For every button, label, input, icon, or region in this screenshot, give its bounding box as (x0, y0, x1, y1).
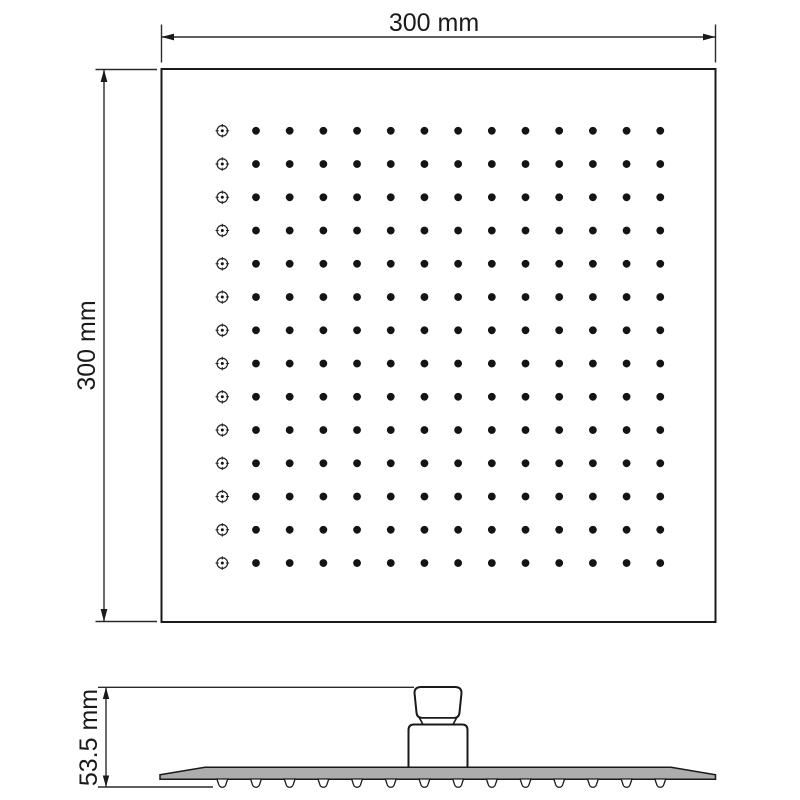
nozzle-dot (421, 493, 429, 501)
nozzle-dot (286, 360, 294, 368)
nozzle-dot (522, 127, 530, 135)
nozzle-dot (387, 360, 395, 368)
nozzle-dot (421, 127, 429, 135)
nozzle-dot (421, 260, 429, 268)
nozzle-dot (656, 360, 664, 368)
nozzle-dot (522, 360, 530, 368)
nozzle-dot (421, 526, 429, 534)
nozzle-dot (589, 160, 597, 168)
nozzle-dot (522, 459, 530, 467)
nozzle-dot (387, 326, 395, 334)
nozzle-dot (488, 426, 496, 434)
nozzle-dot (488, 260, 496, 268)
nozzle-dot (353, 293, 361, 301)
width-dimension-label: 300 mm (389, 9, 479, 37)
nozzle-dot (623, 559, 631, 567)
nozzle-dot (623, 193, 631, 201)
nozzle-dot (387, 426, 395, 434)
nozzle-dot (555, 127, 563, 135)
nozzle-dot (319, 193, 327, 201)
nozzle-dot (522, 426, 530, 434)
nozzle-dot (252, 360, 260, 368)
nozzle-dot (656, 459, 664, 467)
nozzle-dot (656, 260, 664, 268)
nozzle-dot (353, 326, 361, 334)
nozzle-dot (421, 160, 429, 168)
nozzle-dot (421, 227, 429, 235)
nozzle-dot (589, 459, 597, 467)
nozzle-tip (587, 779, 598, 787)
nozzle-tips-row (217, 779, 666, 787)
nozzle-dot (421, 559, 429, 567)
nozzle-dot (353, 160, 361, 168)
nozzle-dot (454, 526, 462, 534)
nozzle-dot (656, 559, 664, 567)
nozzle-dot (286, 559, 294, 567)
nozzle-dot (555, 293, 563, 301)
nozzle-dot (286, 493, 294, 501)
nozzle-dot (555, 493, 563, 501)
nozzle-dot (555, 260, 563, 268)
nozzle-dot (252, 326, 260, 334)
nozzle-dot (421, 193, 429, 201)
nozzle-dot (353, 393, 361, 401)
nozzle-dot (522, 559, 530, 567)
nozzle-dot (488, 493, 496, 501)
nozzle-dot (319, 227, 327, 235)
nozzle-dot (623, 160, 631, 168)
nozzle-dot (522, 393, 530, 401)
shower-plate-profile (160, 767, 716, 779)
nozzle-tip (385, 779, 396, 787)
nozzle-dot (454, 360, 462, 368)
nozzle-dot (555, 559, 563, 567)
nozzle-tip (621, 779, 632, 787)
shower-head-dimension-drawing: 300 mm 300 mm (0, 0, 800, 800)
nozzle-dot (555, 426, 563, 434)
inlet-fitting (415, 687, 462, 718)
height-dimension (96, 70, 158, 622)
nozzle-dot (454, 426, 462, 434)
connector-base (409, 725, 468, 769)
nozzle-dot (488, 559, 496, 567)
nozzle-dot (656, 526, 664, 534)
nozzle-dot (488, 326, 496, 334)
nozzle-dot (387, 493, 395, 501)
nozzle-dot (353, 559, 361, 567)
nozzle-tip (554, 779, 565, 787)
nozzle-dot (454, 160, 462, 168)
nozzle-dot (589, 260, 597, 268)
nozzle-dot (286, 260, 294, 268)
nozzle-dot (623, 260, 631, 268)
nozzle-dot (522, 160, 530, 168)
nozzle-dot (387, 260, 395, 268)
arrowhead-down-icon (103, 776, 109, 788)
nozzle-dot (319, 493, 327, 501)
nozzle-dot (454, 393, 462, 401)
nozzle-tip (419, 779, 430, 787)
nozzle-dot (522, 493, 530, 501)
nozzle-dot (656, 426, 664, 434)
nozzle-dot (319, 127, 327, 135)
nozzle-dot (488, 127, 496, 135)
nozzle-dot (454, 326, 462, 334)
nozzle-dot (623, 293, 631, 301)
nozzle-dot (488, 393, 496, 401)
nozzle-dot (589, 559, 597, 567)
nozzle-dot (421, 326, 429, 334)
nozzle-dot (488, 526, 496, 534)
nozzle-dot (623, 526, 631, 534)
nozzle-dot (252, 127, 260, 135)
nozzle-dot (387, 293, 395, 301)
nozzle-dot (589, 393, 597, 401)
front-view (162, 69, 716, 622)
nozzle-dot (319, 393, 327, 401)
side-height-dimension-label: 53.5 mm (75, 689, 103, 786)
nozzle-dot (522, 326, 530, 334)
nozzle-dot (656, 393, 664, 401)
nozzle-dot (353, 227, 361, 235)
nozzle-dot (623, 326, 631, 334)
nozzle-dot (286, 393, 294, 401)
nozzle-dot (421, 360, 429, 368)
nozzle-dot (387, 459, 395, 467)
nozzle-dot (252, 559, 260, 567)
nozzle-dot (623, 227, 631, 235)
nozzle-dot (656, 193, 664, 201)
nozzle-dot (387, 193, 395, 201)
nozzle-tip (486, 779, 497, 787)
nozzle-dot (421, 393, 429, 401)
nozzle-dot (319, 360, 327, 368)
nozzle-tip (453, 779, 464, 787)
nozzle-tip (352, 779, 363, 787)
nozzle-dot (488, 293, 496, 301)
nozzle-dot (319, 326, 327, 334)
nozzle-dot (387, 526, 395, 534)
nozzle-dot (387, 127, 395, 135)
nozzle-dot (353, 193, 361, 201)
nozzle-dot (286, 459, 294, 467)
nozzle-dot (286, 127, 294, 135)
nozzle-dot (589, 360, 597, 368)
nozzle-dot (353, 360, 361, 368)
arrowhead-left-icon (162, 34, 175, 41)
nozzle-dot (286, 193, 294, 201)
nozzle-dot (252, 293, 260, 301)
nozzle-dot (252, 426, 260, 434)
arrowhead-right-icon (703, 34, 716, 41)
nozzle-dot (555, 360, 563, 368)
nozzle-dot (252, 193, 260, 201)
nozzle-dot (286, 160, 294, 168)
nozzle-dot (522, 227, 530, 235)
nozzle-dot (555, 160, 563, 168)
height-dimension-label: 300 mm (73, 300, 101, 390)
arrowhead-up-icon (101, 70, 108, 83)
nozzle-dot (522, 193, 530, 201)
nozzle-dot (623, 459, 631, 467)
nozzle-dot (353, 526, 361, 534)
nozzle-dot (252, 493, 260, 501)
nozzle-dot (353, 426, 361, 434)
nozzle-dot (319, 160, 327, 168)
nozzle-dot (589, 493, 597, 501)
nozzle-dot (555, 326, 563, 334)
nozzle-dot (623, 360, 631, 368)
nozzle-dot (387, 160, 395, 168)
nozzle-dot (353, 127, 361, 135)
nozzle-dot (656, 493, 664, 501)
nozzle-dot (488, 459, 496, 467)
nozzle-dot (454, 227, 462, 235)
nozzle-dot (387, 559, 395, 567)
nozzle-dot (623, 493, 631, 501)
nozzle-dot (623, 127, 631, 135)
nozzle-dot (319, 559, 327, 567)
technical-drawing-page: 300 mm 300 mm (0, 0, 800, 800)
nozzle-dot (623, 393, 631, 401)
nozzle-dot (286, 293, 294, 301)
nozzle-dot (589, 526, 597, 534)
nozzle-dot (454, 459, 462, 467)
nozzle-dot (623, 426, 631, 434)
nozzle-dot (522, 526, 530, 534)
nozzle-dot (488, 193, 496, 201)
arrowhead-down-icon (101, 609, 108, 622)
nozzle-dot (421, 426, 429, 434)
nozzle-dot (488, 360, 496, 368)
nozzle-dot (252, 227, 260, 235)
nozzle-dot (589, 127, 597, 135)
nozzle-dot (555, 393, 563, 401)
nozzle-dot (488, 160, 496, 168)
nozzle-dot (555, 459, 563, 467)
nozzle-dot (252, 260, 260, 268)
nozzle-dot (589, 193, 597, 201)
nozzle-tip (251, 779, 262, 787)
nozzle-dot (555, 227, 563, 235)
nozzle-dot (589, 227, 597, 235)
nozzle-dot (353, 459, 361, 467)
nozzle-dot (656, 160, 664, 168)
shower-plate-outline (162, 69, 716, 622)
nozzle-dot (319, 426, 327, 434)
nozzle-dot (454, 493, 462, 501)
nozzle-dot (589, 293, 597, 301)
nozzle-dot (387, 227, 395, 235)
nozzle-dot (353, 493, 361, 501)
nozzle-dot (387, 393, 395, 401)
nozzle-dot (656, 293, 664, 301)
nozzle-dot (454, 193, 462, 201)
nozzle-dot (522, 260, 530, 268)
nozzle-dot (286, 426, 294, 434)
nozzle-dot (252, 160, 260, 168)
nozzle-dot (454, 559, 462, 567)
nozzle-dot (252, 393, 260, 401)
nozzle-dot (454, 293, 462, 301)
nozzle-dot (353, 260, 361, 268)
nozzle-dot (252, 459, 260, 467)
nozzle-tip (520, 779, 531, 787)
arrowhead-up-icon (103, 687, 109, 699)
nozzle-dot (286, 326, 294, 334)
nozzle-tip (655, 779, 666, 787)
nozzle-dot (589, 426, 597, 434)
nozzle-dot (319, 260, 327, 268)
nozzle-dot (656, 127, 664, 135)
nozzle-dot (421, 459, 429, 467)
nozzle-dot (656, 326, 664, 334)
nozzle-dot (286, 526, 294, 534)
nozzle-tip (217, 779, 228, 787)
nozzle-dot (555, 193, 563, 201)
nozzle-tip (318, 779, 329, 787)
nozzle-dot (589, 326, 597, 334)
nozzle-dot (522, 293, 530, 301)
nozzle-dot (555, 526, 563, 534)
nozzle-dot (454, 260, 462, 268)
nozzle-dot (454, 127, 462, 135)
nozzle-dot (319, 293, 327, 301)
nozzle-dot (421, 293, 429, 301)
nozzle-tip (284, 779, 295, 787)
nozzle-dot (656, 227, 664, 235)
side-view (160, 687, 716, 787)
nozzle-dot (286, 227, 294, 235)
nozzle-dot (488, 227, 496, 235)
nozzle-dot (319, 526, 327, 534)
nozzle-dot (252, 526, 260, 534)
nozzle-dot (319, 459, 327, 467)
